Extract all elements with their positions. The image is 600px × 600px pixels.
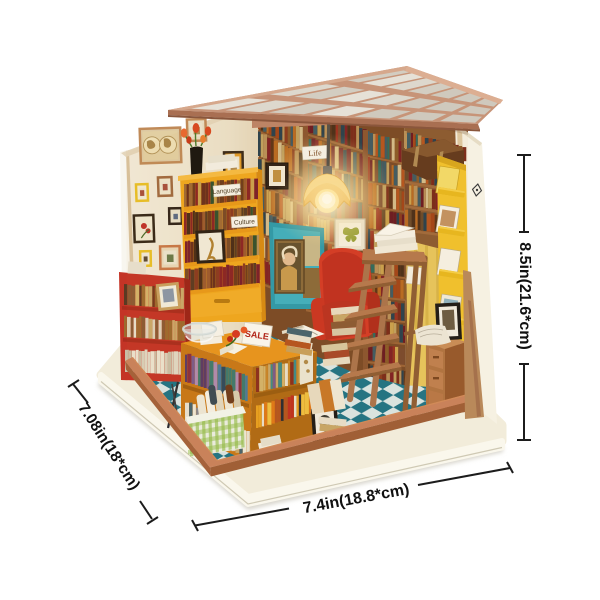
svg-text:8.5in(21.6*cm): 8.5in(21.6*cm) xyxy=(516,242,533,350)
